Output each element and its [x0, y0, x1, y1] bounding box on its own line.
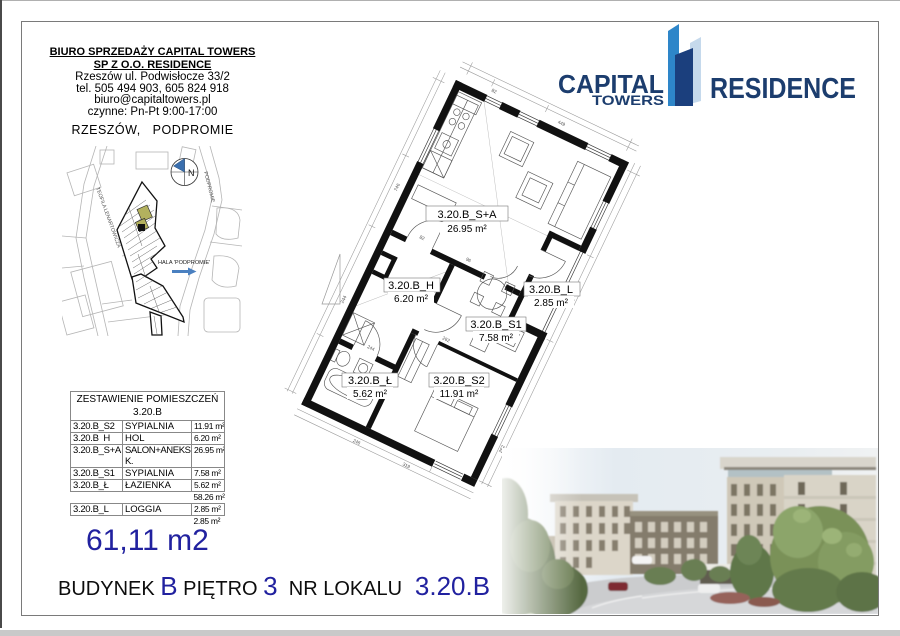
- svg-text:11.91 m²: 11.91 m²: [440, 389, 479, 400]
- svg-text:PODPROMIE: PODPROMIE: [202, 171, 216, 204]
- svg-text:244: 244: [366, 344, 375, 352]
- svg-text:7.58 m²: 7.58 m²: [479, 333, 514, 344]
- svg-text:449: 449: [557, 119, 566, 127]
- svg-text:3.20.B_S1: 3.20.B_S1: [470, 319, 521, 331]
- svg-text:5.62 m²: 5.62 m²: [353, 389, 388, 400]
- svg-text:3.20.B_S+A: 3.20.B_S+A: [437, 209, 497, 221]
- svg-text:TEOFILA LENARTOWICZA: TEOFILA LENARTOWICZA: [94, 187, 122, 250]
- svg-text:RESIDENCE: RESIDENCE: [710, 73, 856, 105]
- svg-text:96: 96: [465, 257, 472, 264]
- svg-text:82: 82: [491, 88, 498, 95]
- svg-text:26.95 m²: 26.95 m²: [447, 224, 487, 235]
- svg-text:3.20.B_H: 3.20.B_H: [388, 280, 434, 292]
- svg-text:N: N: [188, 168, 195, 178]
- svg-text:3.20.B_L: 3.20.B_L: [529, 284, 573, 296]
- svg-text:3.20.B_Ł: 3.20.B_Ł: [348, 375, 392, 387]
- svg-text:6.20 m²: 6.20 m²: [394, 294, 429, 305]
- svg-text:746: 746: [393, 182, 401, 192]
- svg-text:HALA 'PODPROMIE': HALA 'PODPROMIE': [158, 260, 210, 266]
- svg-text:244: 244: [340, 294, 348, 304]
- svg-text:262: 262: [442, 335, 451, 343]
- svg-text:3.20.B_S2: 3.20.B_S2: [433, 375, 484, 387]
- svg-text:2.85 m²: 2.85 m²: [534, 298, 569, 309]
- svg-text:82: 82: [419, 234, 426, 241]
